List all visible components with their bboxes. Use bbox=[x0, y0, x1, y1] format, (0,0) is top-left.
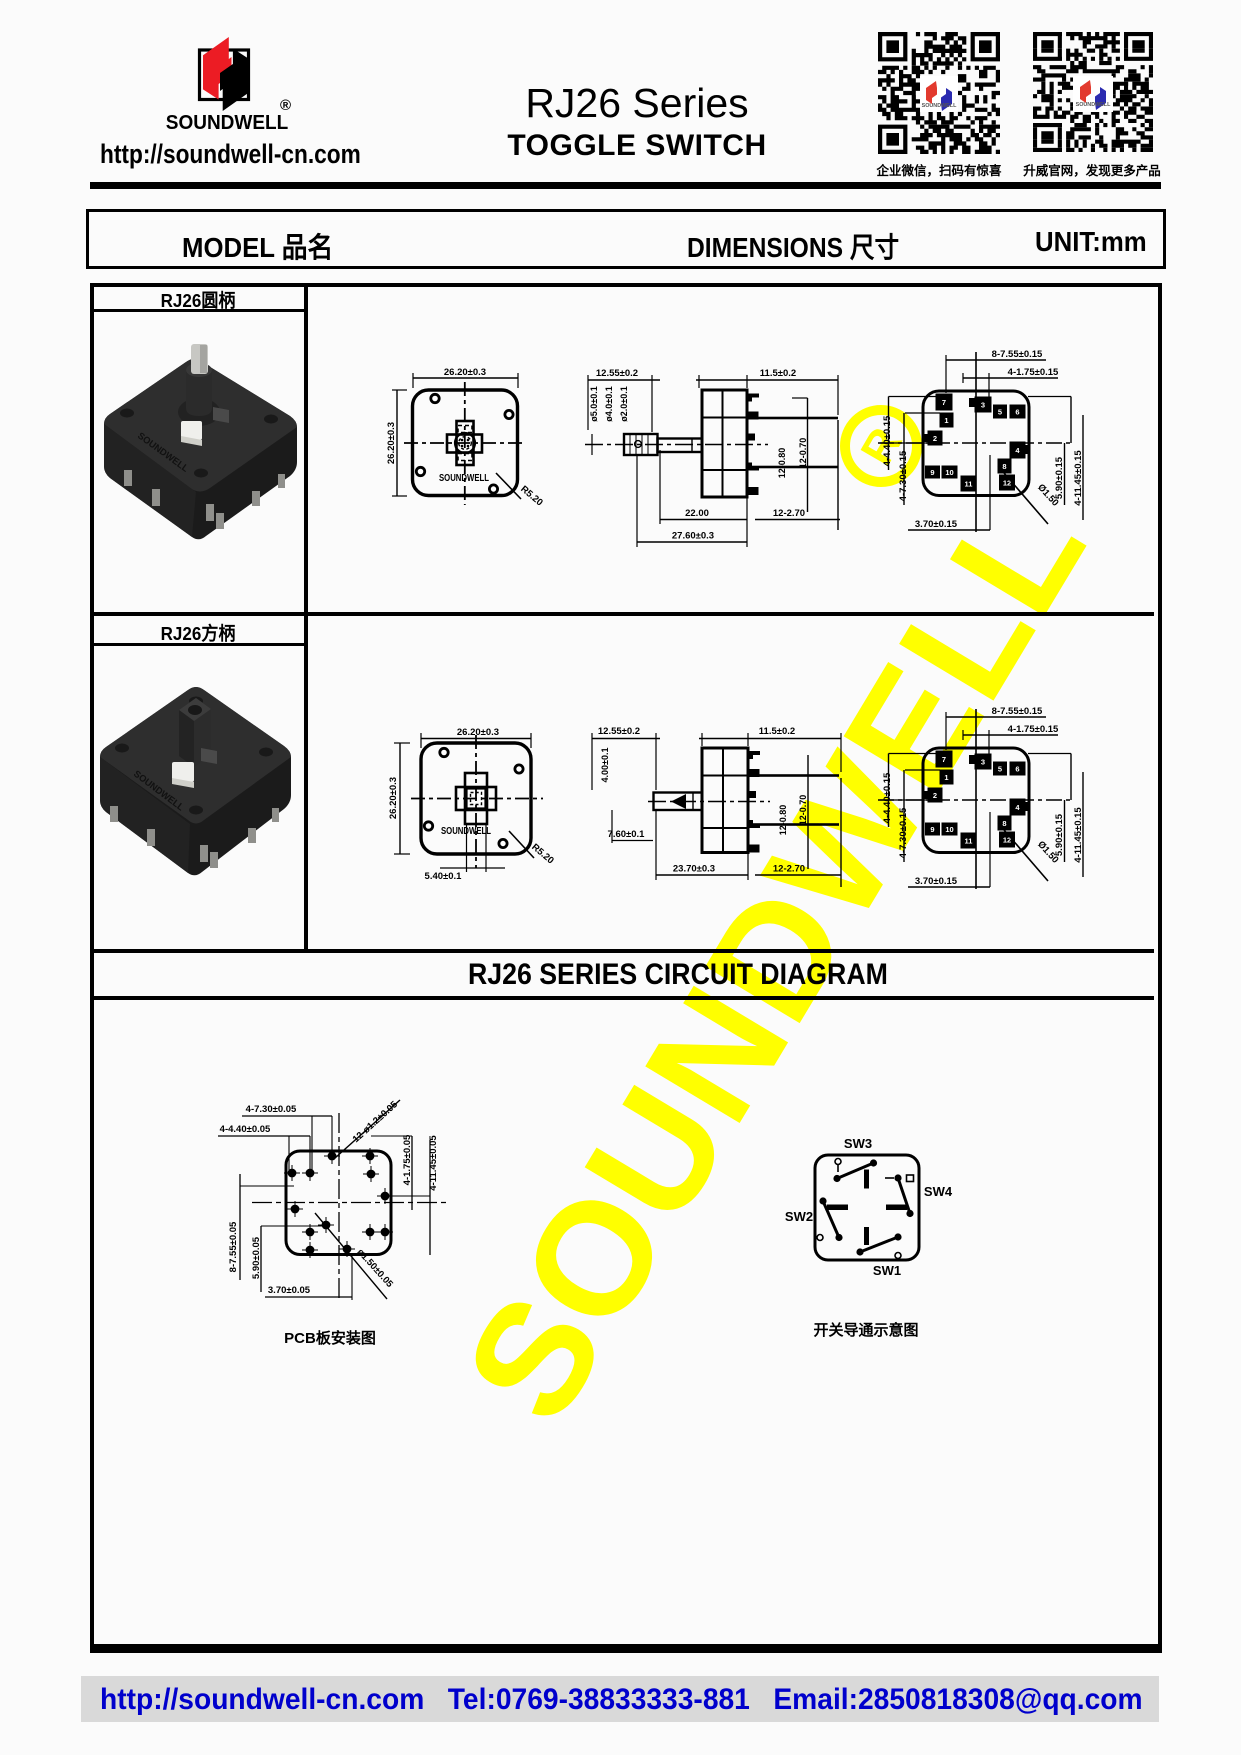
svg-text:10: 10 bbox=[945, 825, 953, 834]
svg-text:8-7.55±0.15: 8-7.55±0.15 bbox=[992, 706, 1043, 717]
svg-text:1: 1 bbox=[944, 416, 948, 425]
svg-text:12.55±0.2: 12.55±0.2 bbox=[598, 726, 640, 737]
svg-text:SOUNDWELL: SOUNDWELL bbox=[1076, 102, 1111, 108]
svg-text:12-0.80: 12-0.80 bbox=[778, 805, 788, 836]
svg-text:1: 1 bbox=[944, 773, 948, 782]
svg-text:开关导通示意图: 开关导通示意图 bbox=[813, 1321, 918, 1339]
svg-text:10: 10 bbox=[945, 468, 953, 477]
svg-text:5.90±0.15: 5.90±0.15 bbox=[1054, 456, 1065, 499]
svg-text:12-0.70: 12-0.70 bbox=[798, 795, 808, 826]
svg-text:7: 7 bbox=[942, 398, 946, 407]
svg-text:SW1: SW1 bbox=[873, 1263, 901, 1278]
svg-text:2: 2 bbox=[933, 434, 937, 443]
svg-text:26.20±0.3: 26.20±0.3 bbox=[386, 422, 397, 464]
svg-text:5.90±0.05: 5.90±0.05 bbox=[251, 1236, 262, 1279]
svg-text:9: 9 bbox=[930, 468, 934, 477]
svg-text:5.90±0.15: 5.90±0.15 bbox=[1054, 813, 1065, 856]
svg-text:3.70±0.05: 3.70±0.05 bbox=[268, 1285, 311, 1296]
svg-text:4-11.45±0.05: 4-11.45±0.05 bbox=[428, 1135, 439, 1191]
svg-text:SW2: SW2 bbox=[785, 1209, 813, 1224]
svg-text:5.40±0.1: 5.40±0.1 bbox=[425, 871, 463, 882]
svg-text:R5.20: R5.20 bbox=[529, 842, 555, 867]
svg-text:8: 8 bbox=[1002, 462, 1006, 471]
svg-text:8: 8 bbox=[1002, 819, 1006, 828]
svg-text:26.20±0.3: 26.20±0.3 bbox=[388, 777, 399, 819]
svg-text:SOUNDWELL: SOUNDWELL bbox=[441, 825, 491, 837]
svg-text:11: 11 bbox=[965, 837, 973, 846]
svg-text:6: 6 bbox=[1015, 765, 1019, 774]
svg-text:12-2.70: 12-2.70 bbox=[773, 864, 805, 875]
svg-text:9: 9 bbox=[930, 825, 934, 834]
svg-text:26.20±0.3: 26.20±0.3 bbox=[444, 367, 486, 378]
svg-text:7: 7 bbox=[942, 755, 946, 764]
svg-text:3: 3 bbox=[981, 758, 985, 767]
svg-text:4-1.75±0.15: 4-1.75±0.15 bbox=[1008, 724, 1059, 735]
svg-text:8-7.55±0.05: 8-7.55±0.05 bbox=[228, 1221, 239, 1272]
svg-text:8-7.55±0.15: 8-7.55±0.15 bbox=[992, 349, 1043, 360]
svg-text:3: 3 bbox=[981, 401, 985, 410]
svg-text:4-4.40±0.15: 4-4.40±0.15 bbox=[882, 772, 893, 823]
svg-text:4-1.75±0.05: 4-1.75±0.05 bbox=[402, 1134, 413, 1185]
svg-text:R5.20: R5.20 bbox=[518, 484, 544, 509]
svg-text:4-4.40±0.15: 4-4.40±0.15 bbox=[882, 415, 893, 466]
svg-text:26.20±0.3: 26.20±0.3 bbox=[457, 727, 499, 738]
svg-text:4.00±0.1: 4.00±0.1 bbox=[600, 748, 610, 783]
svg-text:27.60±0.3: 27.60±0.3 bbox=[672, 531, 714, 542]
svg-text:7.60±0.1: 7.60±0.1 bbox=[608, 829, 646, 840]
svg-text:4-7.30±0.05: 4-7.30±0.05 bbox=[246, 1104, 297, 1115]
svg-text:12-0.80: 12-0.80 bbox=[777, 448, 787, 479]
svg-text:4-1.75±0.15: 4-1.75±0.15 bbox=[1008, 367, 1059, 378]
svg-text:SOUNDWELL: SOUNDWELL bbox=[922, 103, 957, 109]
svg-text:5: 5 bbox=[998, 408, 1002, 417]
svg-text:11: 11 bbox=[965, 480, 973, 489]
svg-text:ø2.0±0.1: ø2.0±0.1 bbox=[619, 386, 629, 421]
svg-text:SW4: SW4 bbox=[924, 1184, 953, 1199]
svg-text:2: 2 bbox=[933, 791, 937, 800]
svg-text:4-7.30±0.15: 4-7.30±0.15 bbox=[898, 450, 909, 501]
svg-text:SOUNDWELL: SOUNDWELL bbox=[439, 472, 489, 484]
svg-text:23.70±0.3: 23.70±0.3 bbox=[673, 864, 715, 875]
svg-text:3.70±0.15: 3.70±0.15 bbox=[915, 876, 958, 887]
svg-text:11.5±0.2: 11.5±0.2 bbox=[760, 368, 796, 379]
svg-text:12-0.70: 12-0.70 bbox=[798, 438, 808, 469]
svg-text:4-11.45±0.15: 4-11.45±0.15 bbox=[1073, 807, 1084, 863]
svg-text:5: 5 bbox=[998, 765, 1002, 774]
svg-text:ø5.0±0.1: ø5.0±0.1 bbox=[589, 386, 599, 421]
svg-text:22.00: 22.00 bbox=[685, 508, 709, 519]
svg-text:12-2.70: 12-2.70 bbox=[773, 508, 805, 519]
svg-text:4-4.40±0.05: 4-4.40±0.05 bbox=[220, 1124, 271, 1135]
svg-text:4-7.30±0.15: 4-7.30±0.15 bbox=[898, 807, 909, 858]
svg-text:12.55±0.2: 12.55±0.2 bbox=[596, 368, 638, 379]
svg-text:ø4.0±0.1: ø4.0±0.1 bbox=[604, 386, 614, 421]
svg-text:6: 6 bbox=[1015, 408, 1019, 417]
svg-text:3.70±0.15: 3.70±0.15 bbox=[915, 519, 958, 530]
svg-text:SW3: SW3 bbox=[844, 1136, 872, 1151]
svg-text:PCB板安装图: PCB板安装图 bbox=[284, 1329, 376, 1347]
svg-text:12-ø1.2±0.05: 12-ø1.2±0.05 bbox=[351, 1099, 401, 1145]
svg-text:4-11.45±0.15: 4-11.45±0.15 bbox=[1073, 450, 1084, 506]
svg-text:11.5±0.2: 11.5±0.2 bbox=[759, 726, 795, 737]
